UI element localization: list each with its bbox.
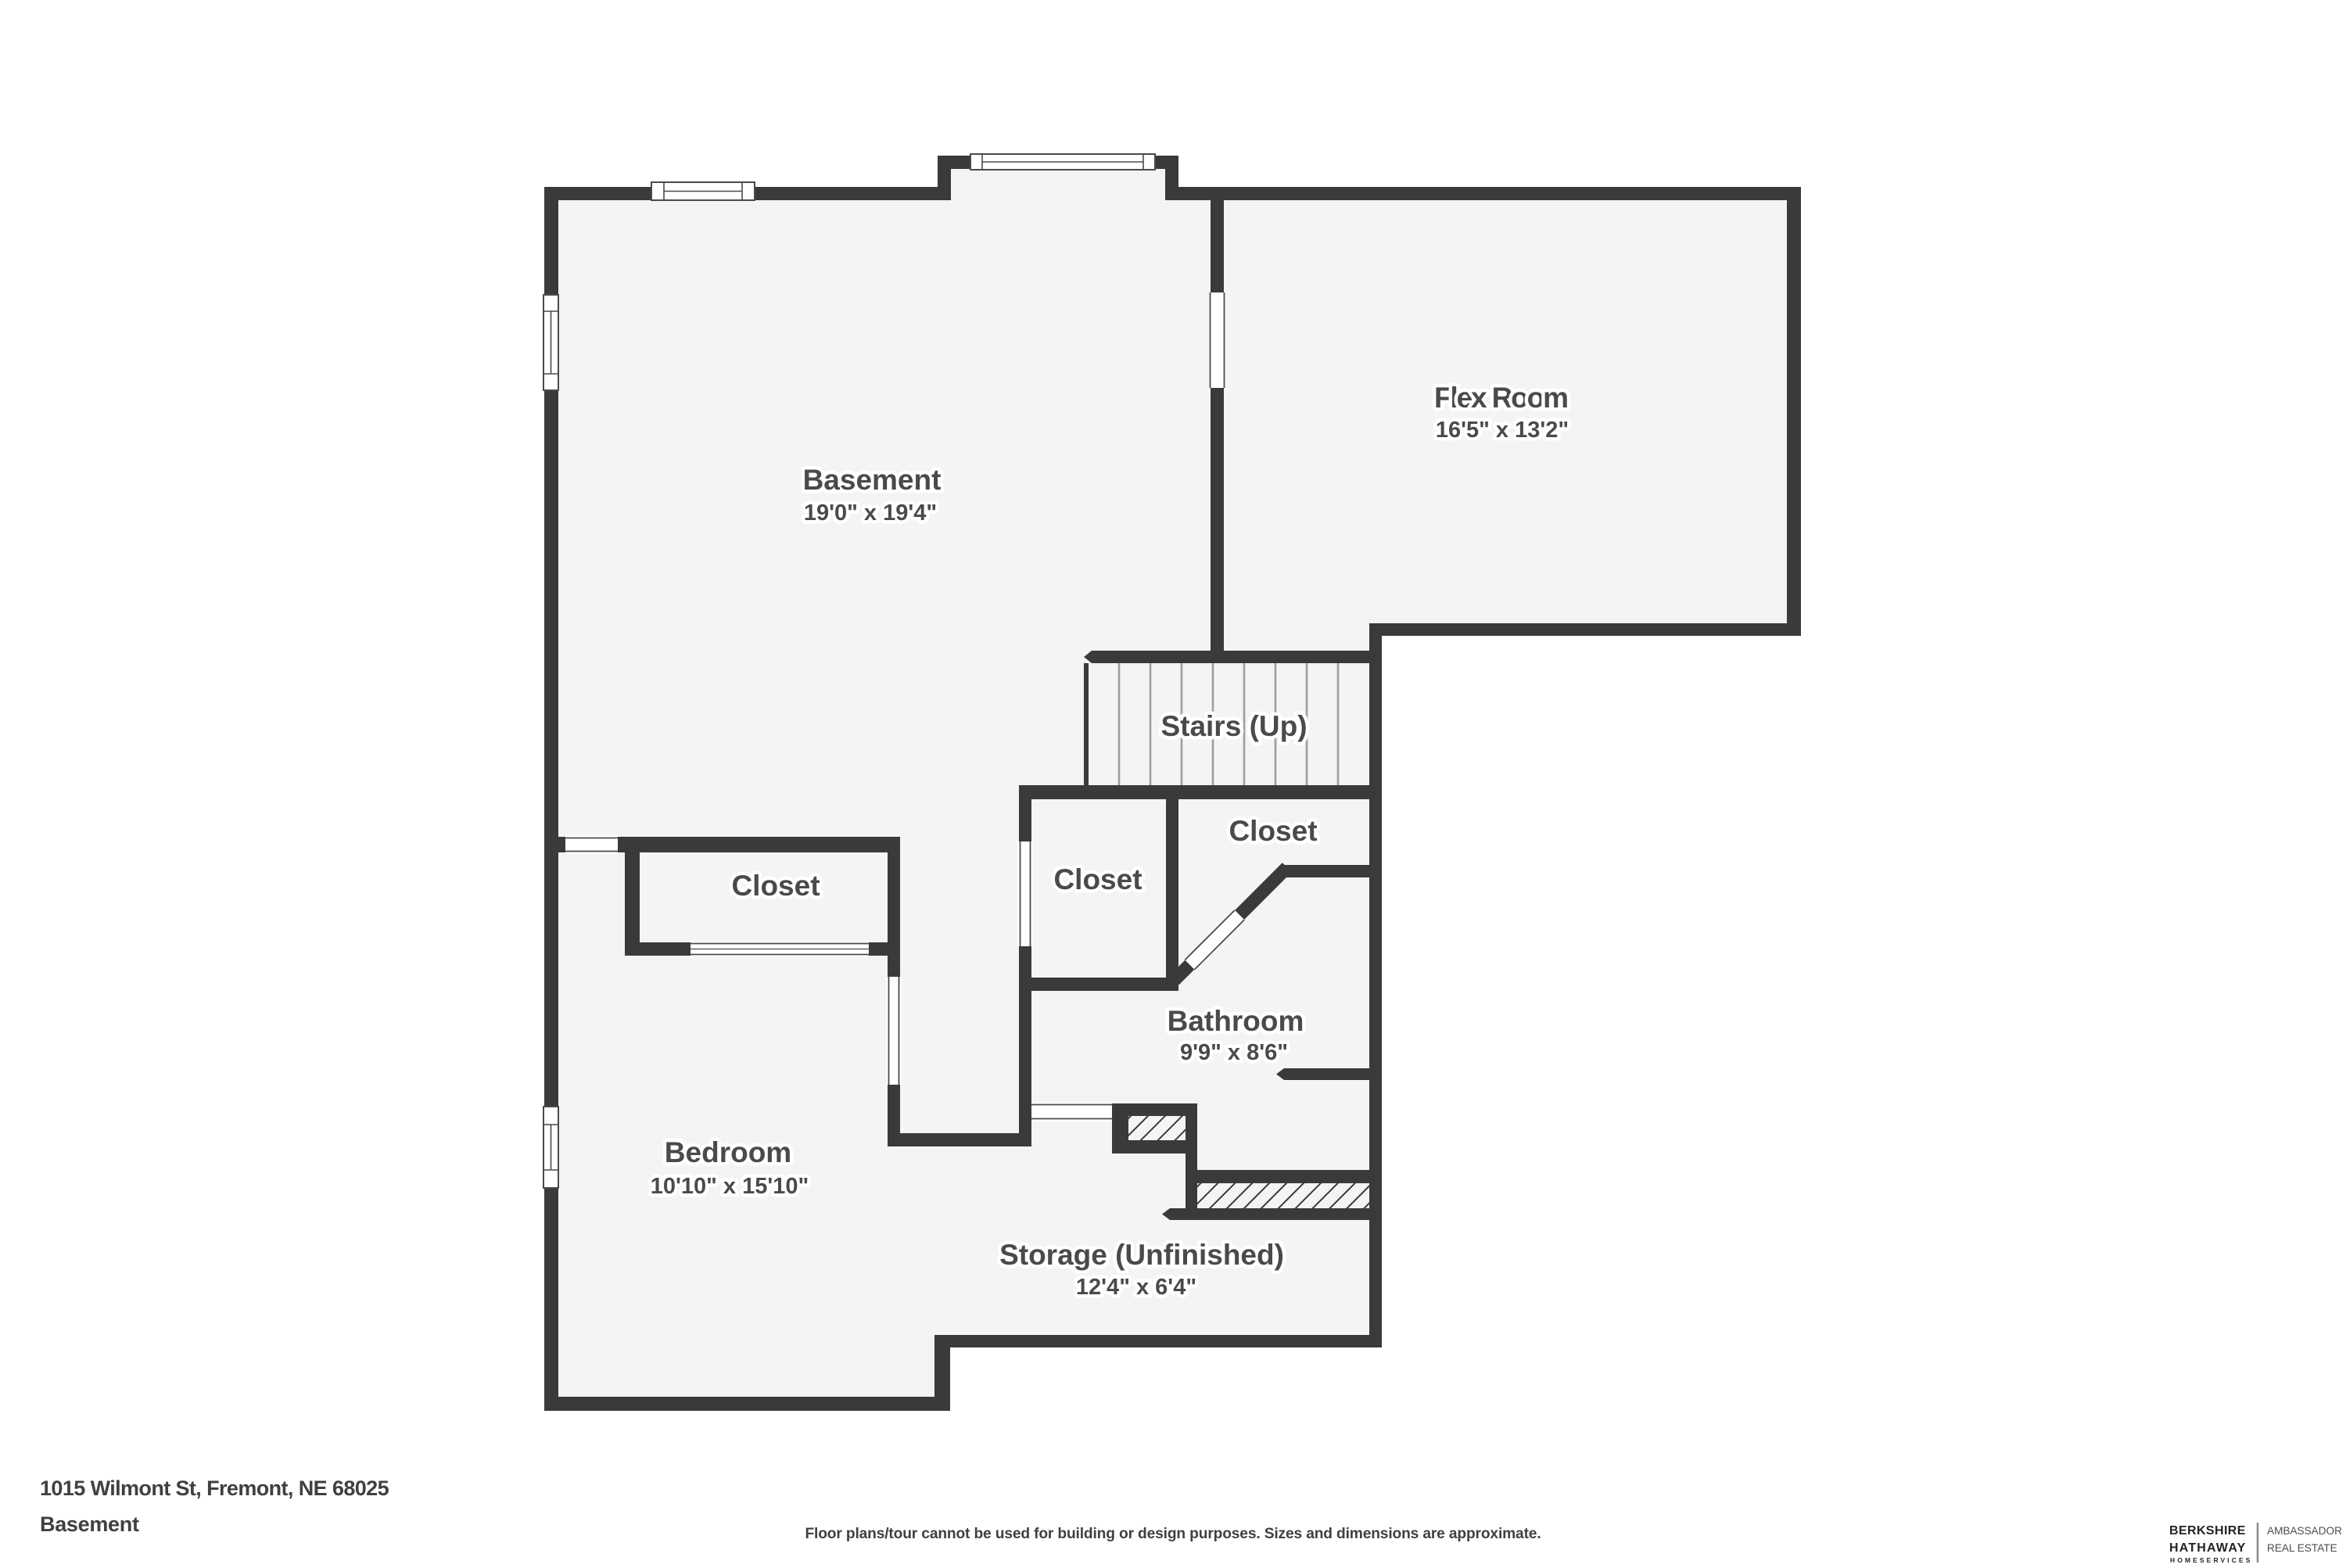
svg-text:HATHAWAY: HATHAWAY (2169, 1541, 2247, 1555)
svg-text:Bathroom: Bathroom (1168, 1005, 1304, 1037)
svg-text:Floor plans/tour cannot be use: Floor plans/tour cannot be used for buil… (805, 1526, 1541, 1542)
svg-text:Stairs (Up): Stairs (Up) (1160, 710, 1307, 742)
svg-text:10'10" x 15'10": 10'10" x 15'10" (651, 1174, 809, 1199)
svg-text:BERKSHIRE: BERKSHIRE (2169, 1524, 2246, 1538)
svg-text:Closet: Closet (1053, 863, 1142, 895)
svg-text:12'4" x 6'4": 12'4" x 6'4" (1076, 1275, 1196, 1300)
svg-text:HOMESERVICES: HOMESERVICES (2170, 1556, 2253, 1564)
svg-text:Bedroom: Bedroom (665, 1136, 791, 1168)
svg-text:Basement: Basement (803, 464, 942, 496)
svg-text:16'5" x 13'2": 16'5" x 13'2" (1436, 418, 1569, 443)
svg-text:9'9" x 8'6": 9'9" x 8'6" (1180, 1040, 1288, 1065)
svg-text:Storage (Unfinished): Storage (Unfinished) (999, 1239, 1284, 1271)
svg-text:Basement: Basement (40, 1512, 139, 1536)
svg-text:1015 Wilmont St, Fremont, NE 6: 1015 Wilmont St, Fremont, NE 68025 (40, 1477, 389, 1500)
svg-text:Flex Room: Flex Room (1434, 382, 1569, 414)
svg-text:AMBASSADOR: AMBASSADOR (2267, 1525, 2342, 1537)
svg-text:19'0" x 19'4": 19'0" x 19'4" (804, 501, 937, 526)
svg-text:Closet: Closet (1229, 815, 1317, 847)
svg-text:Closet: Closet (731, 870, 820, 902)
svg-text:REAL ESTATE: REAL ESTATE (2267, 1542, 2337, 1554)
